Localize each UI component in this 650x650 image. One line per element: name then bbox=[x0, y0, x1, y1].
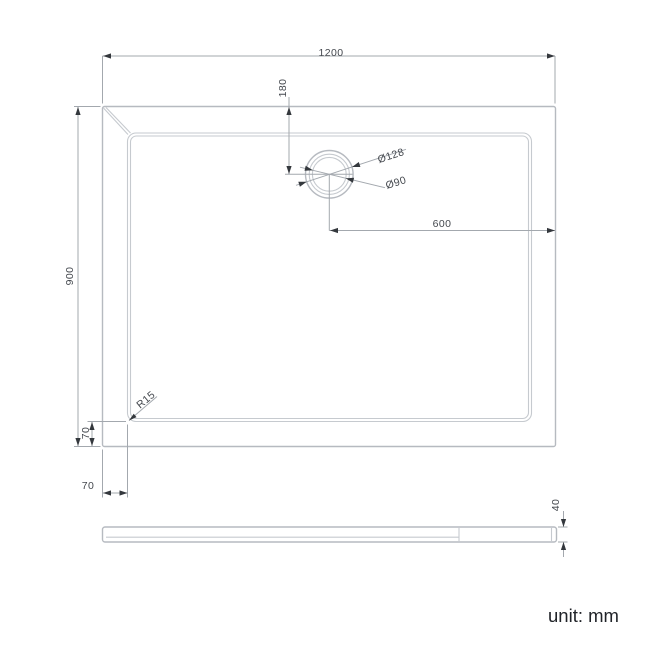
dimension-linework bbox=[74, 53, 568, 557]
corner-chamfer-line bbox=[104, 108, 129, 135]
arrowhead bbox=[352, 162, 360, 167]
drawing-linework bbox=[0, 0, 650, 650]
unit-label: unit: mm bbox=[548, 605, 619, 627]
arrowhead bbox=[547, 53, 555, 58]
arrowhead bbox=[305, 166, 313, 171]
arrowhead bbox=[286, 107, 291, 115]
arrowhead bbox=[547, 228, 555, 233]
arrowhead bbox=[346, 178, 354, 183]
arrowhead bbox=[561, 519, 566, 527]
arrowhead bbox=[561, 542, 566, 550]
dim-drain-center-label: 600 bbox=[433, 218, 452, 230]
arrowhead bbox=[120, 490, 128, 495]
arrowhead bbox=[103, 53, 111, 58]
top-view bbox=[103, 107, 556, 447]
dim-overall-depth-label: 900 bbox=[64, 267, 76, 286]
dim-tray-height-label: 40 bbox=[550, 499, 562, 511]
side-view bbox=[103, 527, 557, 542]
profile-outline bbox=[103, 527, 557, 542]
dim-rim-left-label: 70 bbox=[80, 427, 92, 439]
dim-rim-bottom-label: 70 bbox=[82, 480, 94, 492]
arrowhead bbox=[75, 107, 80, 115]
arrowhead bbox=[103, 490, 111, 495]
arrowhead bbox=[298, 182, 306, 187]
dim-drain-offset-label: 180 bbox=[277, 79, 289, 98]
dim-overall-width-label: 1200 bbox=[319, 47, 344, 59]
arrowhead bbox=[286, 166, 291, 174]
technical-drawing-canvas: 1200 900 180 Ø128 Ø90 600 70 70 R15 40 u… bbox=[0, 0, 650, 650]
corner-chamfer-line bbox=[106, 108, 131, 134]
arrowhead bbox=[330, 228, 338, 233]
